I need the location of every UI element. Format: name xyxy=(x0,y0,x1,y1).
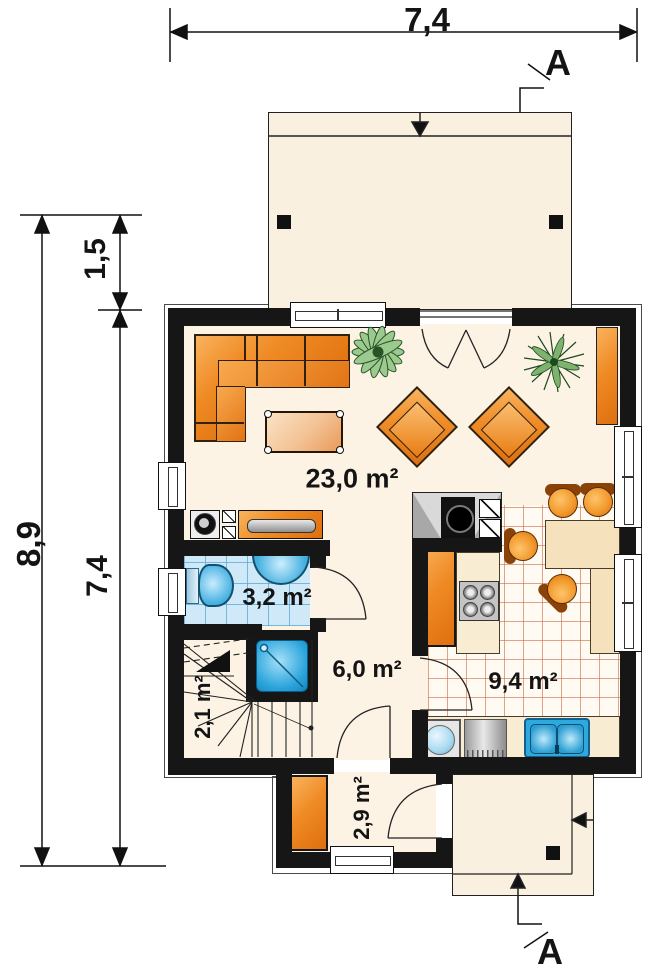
dimension-label-house-depth: 7,4 xyxy=(81,555,115,597)
room-area-kitchen: 9,4 m² xyxy=(488,668,557,696)
terrace-markings xyxy=(269,113,571,136)
plant-icon xyxy=(352,325,404,378)
entry-door xyxy=(388,784,442,838)
room-area-vestibule: 2,9 m² xyxy=(349,776,375,840)
shower-detail xyxy=(261,645,304,688)
terrace-door xyxy=(420,311,512,368)
hall-door xyxy=(337,706,390,758)
room-area-stairs: 2,1 m² xyxy=(190,675,216,739)
dimension-label-left-total: 8,9 xyxy=(10,521,48,567)
dimension-label-top-width: 7,4 xyxy=(404,1,450,39)
section-label-top: A xyxy=(545,42,571,84)
room-area-living: 23,0 m² xyxy=(305,464,398,495)
bathroom-door xyxy=(313,567,366,619)
porch-markings xyxy=(453,775,593,895)
section-label-bottom: A xyxy=(537,931,563,973)
room-area-hall: 6,0 m² xyxy=(332,656,401,684)
kitchen-door xyxy=(420,658,472,710)
plant-icon xyxy=(524,332,584,392)
dimension-label-terrace-depth: 1,5 xyxy=(79,238,113,280)
floor-plan: 23,0 m² 3,2 m² 6,0 m² 9,4 m² 2,1 m² 2,9 … xyxy=(0,0,660,974)
room-area-bathroom: 3,2 m² xyxy=(242,584,311,612)
